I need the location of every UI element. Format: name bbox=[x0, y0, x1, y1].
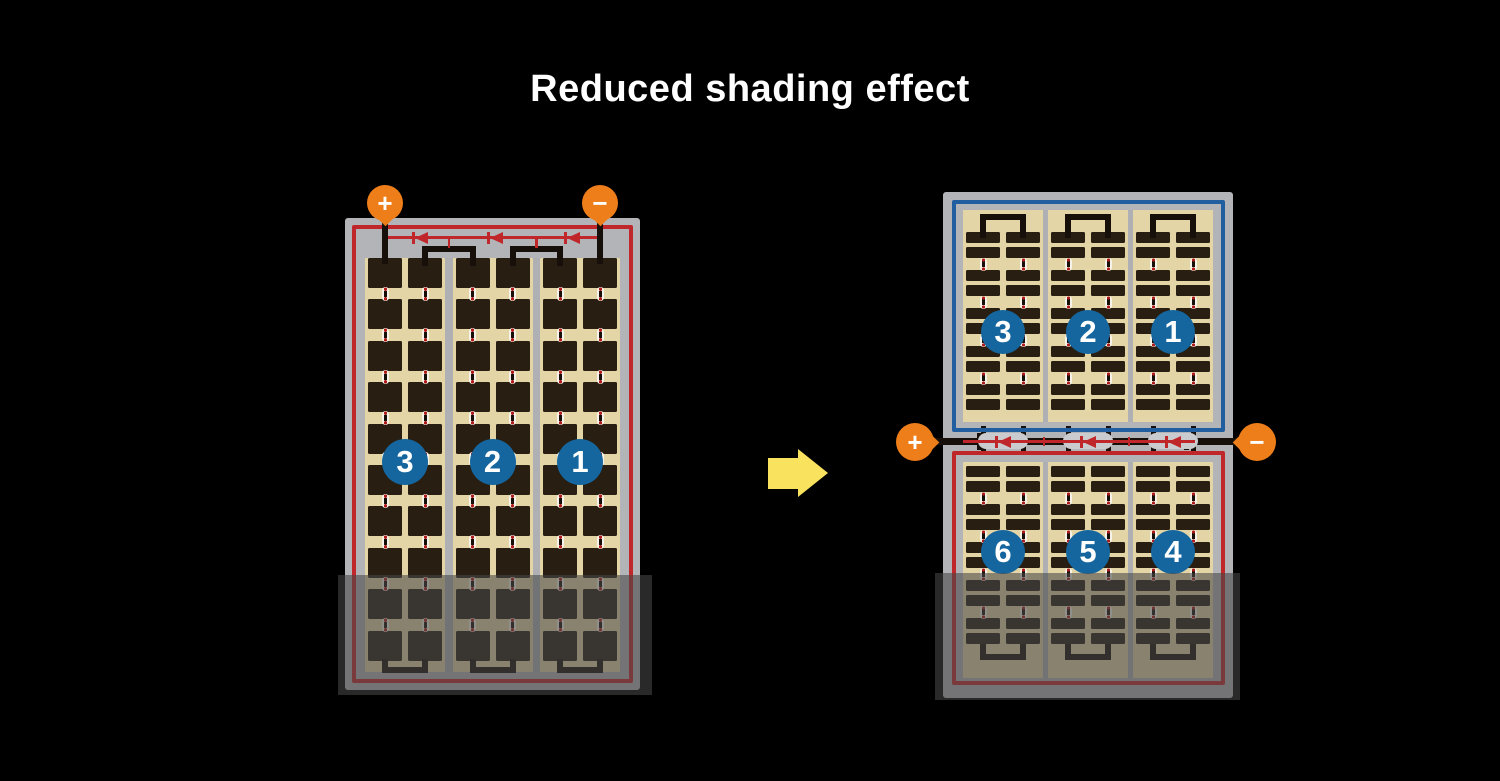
plus-terminal-icon: + bbox=[896, 423, 934, 461]
diode-part bbox=[1168, 436, 1181, 448]
diode-part bbox=[1083, 436, 1096, 448]
left-panel-canvas: 321 bbox=[345, 218, 640, 690]
plus-terminal-icon: + bbox=[367, 185, 403, 221]
string-number-badge: 3 bbox=[382, 439, 428, 485]
string-number-badge: 4 bbox=[1151, 530, 1195, 574]
minus-terminal-icon: − bbox=[582, 185, 618, 221]
split-panel-module: 321654 + − bbox=[943, 192, 1233, 698]
bypass-diode-icon bbox=[1165, 436, 1181, 448]
shading-overlay bbox=[338, 575, 652, 695]
transform-arrow-icon bbox=[768, 449, 828, 498]
arrow-head bbox=[798, 449, 828, 497]
diode-part bbox=[998, 436, 1011, 448]
plus-sign: + bbox=[377, 190, 392, 216]
bus-tap bbox=[1128, 437, 1131, 446]
shading-overlay bbox=[935, 573, 1240, 700]
minus-sign: − bbox=[1249, 429, 1264, 455]
arrow-body bbox=[768, 458, 799, 489]
single-panel-module: 321 + − bbox=[345, 218, 640, 690]
string-number-badge: 1 bbox=[557, 439, 603, 485]
string-number-badge: 2 bbox=[470, 439, 516, 485]
minus-sign: − bbox=[592, 190, 607, 216]
string-number-badge: 6 bbox=[981, 530, 1025, 574]
string-number-badge: 3 bbox=[981, 310, 1025, 354]
bus-tap bbox=[1043, 437, 1046, 446]
diagram: Reduced shading effect 321 + − 321654 + … bbox=[0, 0, 1500, 781]
string-number-badge: 2 bbox=[1066, 310, 1110, 354]
minus-terminal-icon: − bbox=[1238, 423, 1276, 461]
right-panel-canvas: 321654 bbox=[943, 192, 1233, 698]
plus-sign: + bbox=[907, 429, 922, 455]
string-number-badge: 1 bbox=[1151, 310, 1195, 354]
string-number-badge: 5 bbox=[1066, 530, 1110, 574]
bypass-diode-icon bbox=[1080, 436, 1096, 448]
diagram-title: Reduced shading effect bbox=[0, 68, 1500, 111]
bypass-diode-icon bbox=[995, 436, 1011, 448]
